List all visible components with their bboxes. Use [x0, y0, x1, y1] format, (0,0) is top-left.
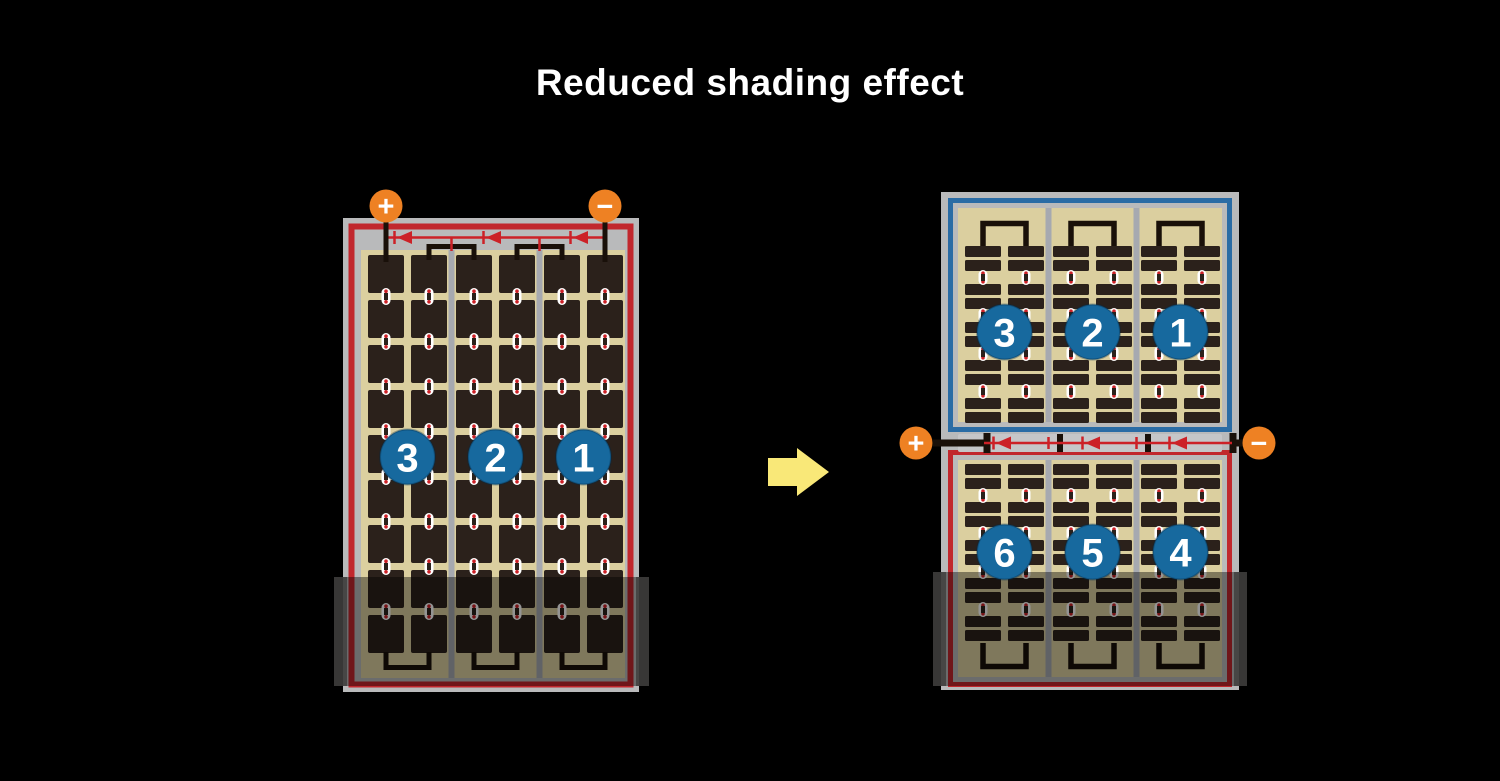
string-badge-label: 4 [1169, 532, 1192, 576]
solar-cell [456, 525, 492, 563]
shading-overlay [347, 577, 636, 686]
half-cut-cell [1141, 360, 1177, 371]
cell-connector [558, 333, 567, 350]
half-cut-cell [1184, 360, 1220, 371]
half-cut-cell [1053, 260, 1089, 271]
string-badge-label: 1 [1169, 312, 1191, 356]
half-cut-cell [1008, 360, 1044, 371]
cell-connector [513, 513, 522, 530]
half-cut-cell [1053, 478, 1089, 489]
solar-cell [587, 525, 623, 563]
solar-cell [368, 480, 404, 518]
half-cut-cell [1053, 284, 1089, 295]
cell-connector [1110, 488, 1119, 503]
half-cut-cell [965, 246, 1001, 257]
right-module: 321654+− [900, 192, 1276, 690]
string-badge: 5 [1065, 525, 1120, 580]
cell-connector [1022, 384, 1031, 399]
half-cut-cell [1184, 374, 1220, 385]
half-cut-cell [1008, 464, 1044, 475]
positive-terminal: + [370, 190, 403, 224]
cell-connector [1110, 384, 1119, 399]
cell-connector [470, 288, 479, 305]
half-cut-cell [1096, 284, 1132, 295]
half-cut-cell [1053, 374, 1089, 385]
half-cut-cell [1141, 412, 1177, 423]
cell-connector [470, 558, 479, 575]
solar-cell [456, 480, 492, 518]
half-cut-cell [1096, 246, 1132, 257]
cell-connector [1198, 384, 1207, 399]
string-badge: 2 [468, 430, 523, 485]
string-badge-label: 2 [1081, 312, 1103, 356]
half-cut-cell [1096, 398, 1132, 409]
cell-connector [513, 288, 522, 305]
shading-overlay-cap [636, 577, 649, 686]
solar-cell [544, 390, 580, 428]
half-cut-cell [1053, 502, 1089, 513]
half-cut-cell [965, 260, 1001, 271]
solar-cell [456, 300, 492, 338]
cell-connector [425, 333, 434, 350]
string-badge: 3 [977, 305, 1032, 360]
half-cut-cell [1008, 398, 1044, 409]
solar-cell [544, 525, 580, 563]
string-badge: 2 [1065, 305, 1120, 360]
half-cut-cell [1008, 260, 1044, 271]
half-cut-cell [1141, 478, 1177, 489]
solar-cell [456, 255, 492, 293]
cell-connector [1067, 384, 1076, 399]
solar-cell [411, 390, 447, 428]
solar-cell [544, 345, 580, 383]
cell-connector [513, 378, 522, 395]
solar-cell [544, 480, 580, 518]
half-cut-cell [1096, 260, 1132, 271]
half-cut-cell [1008, 284, 1044, 295]
half-cut-cell [1008, 374, 1044, 385]
solar-cell [411, 300, 447, 338]
half-cut-cell [1008, 478, 1044, 489]
half-cut-cell [1184, 412, 1220, 423]
half-cut-cell [965, 398, 1001, 409]
half-cut-cell [1184, 502, 1220, 513]
half-cut-cell [965, 412, 1001, 423]
cell-connector [470, 513, 479, 530]
cell-connector [601, 378, 610, 395]
half-cut-cell [1184, 464, 1220, 475]
solar-cell [587, 345, 623, 383]
half-cut-cell [1141, 398, 1177, 409]
cell-connector [1110, 270, 1119, 285]
string-badge: 3 [380, 430, 435, 485]
solar-cell [587, 300, 623, 338]
solar-cell [544, 300, 580, 338]
terminal-label: − [597, 191, 614, 223]
string-badge-label: 2 [484, 437, 506, 481]
half-cut-cell [1053, 246, 1089, 257]
string-badge-label: 3 [396, 437, 418, 481]
cell-connector [1155, 384, 1164, 399]
half-cut-cell [1096, 374, 1132, 385]
cell-connector [382, 288, 391, 305]
solar-cell [499, 525, 535, 563]
cell-connector [1022, 270, 1031, 285]
solar-cell [368, 390, 404, 428]
cell-connector [1198, 488, 1207, 503]
half-cut-cell [1096, 464, 1132, 475]
cell-connector [382, 513, 391, 530]
cell-connector [425, 378, 434, 395]
cell-connector [1022, 488, 1031, 503]
solar-cell [499, 345, 535, 383]
half-cut-cell [1053, 360, 1089, 371]
string-badge: 6 [977, 525, 1032, 580]
solar-cell [368, 525, 404, 563]
half-cut-cell [1184, 260, 1220, 271]
cell-connector [601, 558, 610, 575]
half-cut-cell [1053, 398, 1089, 409]
half-cut-cell [1053, 464, 1089, 475]
half-cut-cell [1184, 246, 1220, 257]
solar-cell [368, 345, 404, 383]
cell-connector [1067, 488, 1076, 503]
half-cut-cell [1141, 284, 1177, 295]
cell-connector [382, 558, 391, 575]
cell-connector [979, 384, 988, 399]
cell-connector [513, 333, 522, 350]
cell-connector [1198, 270, 1207, 285]
cell-connector [558, 288, 567, 305]
shading-overlay-cap [334, 577, 347, 686]
shading-overlay [946, 572, 1234, 686]
cell-connector [425, 558, 434, 575]
right-arrow-icon [768, 448, 829, 496]
half-cut-cell [1008, 502, 1044, 513]
half-cut-cell [965, 464, 1001, 475]
solar-cell [456, 390, 492, 428]
half-cut-cell [965, 284, 1001, 295]
cell-connector [425, 513, 434, 530]
half-cut-cell [1141, 502, 1177, 513]
cell-connector [513, 558, 522, 575]
string-badge-label: 3 [993, 312, 1015, 356]
half-cut-cell [965, 374, 1001, 385]
cell-connector [601, 513, 610, 530]
half-cut-cell [965, 360, 1001, 371]
arrow-icon [768, 448, 829, 496]
string-separator [1046, 208, 1052, 422]
cell-connector [558, 558, 567, 575]
cell-connector [1155, 488, 1164, 503]
diagram-canvas: 321+− 321654+− [0, 0, 1500, 781]
cell-connector [558, 513, 567, 530]
half-cut-cell [1096, 412, 1132, 423]
terminal-label: − [1251, 428, 1268, 460]
half-cut-cell [1141, 464, 1177, 475]
cell-connector [1067, 270, 1076, 285]
solar-cell [411, 525, 447, 563]
half-cut-cell [965, 502, 1001, 513]
string-separator [1134, 208, 1140, 422]
string-badge: 1 [556, 430, 611, 485]
half-cut-cell [1008, 246, 1044, 257]
string-badge-label: 5 [1081, 532, 1103, 576]
string-badge-label: 6 [993, 532, 1015, 576]
solar-cell [411, 345, 447, 383]
shading-overlay-cap [933, 572, 946, 686]
solar-cell [544, 255, 580, 293]
half-cut-cell [1184, 478, 1220, 489]
cell-connector [979, 270, 988, 285]
half-cut-cell [1053, 412, 1089, 423]
half-cut-cell [1141, 246, 1177, 257]
half-cut-cell [1184, 398, 1220, 409]
string-badge-label: 1 [572, 437, 594, 481]
cell-connector [1155, 270, 1164, 285]
half-cut-cell [1096, 478, 1132, 489]
solar-cell [499, 390, 535, 428]
half-cut-cell [1096, 360, 1132, 371]
solar-cell [587, 480, 623, 518]
negative-terminal: − [589, 190, 622, 224]
half-cut-cell [1096, 502, 1132, 513]
solar-cell [499, 300, 535, 338]
cell-connector [470, 333, 479, 350]
solar-cell [499, 480, 535, 518]
solar-cell [368, 300, 404, 338]
half-cut-cell [1008, 412, 1044, 423]
cell-connector [601, 288, 610, 305]
cell-connector [558, 378, 567, 395]
terminal-label: + [908, 428, 925, 460]
terminal-label: + [378, 191, 395, 223]
cell-connector [470, 378, 479, 395]
cell-connector [425, 288, 434, 305]
negative-terminal: − [1243, 427, 1276, 461]
half-cut-cell [1141, 260, 1177, 271]
string-badge: 1 [1153, 305, 1208, 360]
cell-connector [382, 378, 391, 395]
solar-cell [587, 390, 623, 428]
solar-cell [456, 345, 492, 383]
string-badge: 4 [1153, 525, 1208, 580]
half-cut-cell [1184, 284, 1220, 295]
cell-connector [601, 333, 610, 350]
half-cut-cell [1141, 374, 1177, 385]
cell-connector [979, 488, 988, 503]
half-cut-cell [965, 478, 1001, 489]
solar-cell [411, 255, 447, 293]
positive-terminal: + [900, 427, 933, 461]
solar-cell [499, 255, 535, 293]
cell-connector [382, 333, 391, 350]
shading-overlay-cap [1234, 572, 1247, 686]
left-module: 321+− [334, 190, 649, 693]
solar-cell [411, 480, 447, 518]
